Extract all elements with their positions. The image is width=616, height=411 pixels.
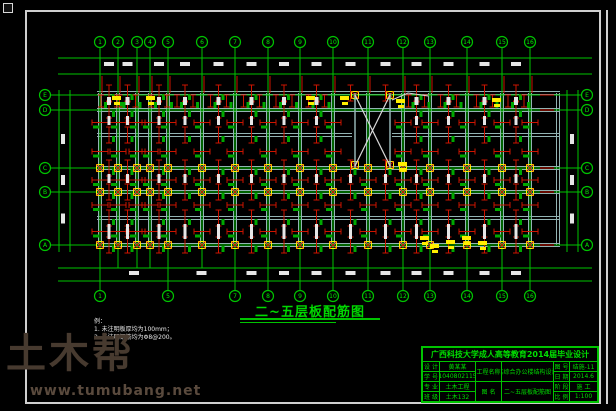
tb-label-date: 日 期 — [554, 372, 570, 382]
axis-bubble-label: 5 — [166, 293, 170, 300]
axis-bubble-label: 15 — [498, 39, 506, 46]
axis-bubble-label: 5 — [166, 39, 170, 46]
axis-bubble-label: D — [43, 107, 48, 114]
axis-bubble-label: 2 — [116, 39, 120, 46]
axis-bubble-label: C — [585, 165, 589, 172]
axis-bubble-label: 6 — [200, 39, 204, 46]
tb-value-stage: 施 工 — [570, 382, 597, 392]
axis-bubble-label: 11 — [364, 39, 372, 46]
tb-value-drawing: 二~五层板配筋图 — [502, 382, 554, 402]
axis-bubble-label: B — [43, 189, 47, 196]
axis-bubble-label: 15 — [498, 293, 506, 300]
axis-bubble-label: 10 — [329, 293, 337, 300]
axis-bubble-label: 14 — [463, 39, 471, 46]
tb-label-design: 设 计 — [423, 362, 440, 372]
tb-value-major: 土木工程 — [440, 382, 476, 392]
axis-bubble-label: 7 — [233, 293, 237, 300]
title-block: 广西科技大学成人高等教育2014届毕业设计 设 计 黄某某 工程名称 某综合办公… — [421, 346, 599, 403]
tb-label-stage: 阶 段 — [554, 382, 570, 392]
axis-bubble-label: 9 — [298, 39, 302, 46]
axis-bubble-label: 10 — [329, 39, 337, 46]
cad-screenshot: 1234567891011121314151615789101112131415… — [0, 0, 616, 411]
tb-value-sheetno: 结施-11 — [570, 362, 597, 372]
axis-bubble-label: 4 — [148, 39, 152, 46]
tb-label-class: 班 级 — [423, 392, 440, 402]
axis-bubble-label: 8 — [266, 39, 270, 46]
axis-bubble-label: 8 — [266, 293, 270, 300]
axis-bubble-label: 7 — [233, 39, 237, 46]
title-underline — [240, 318, 380, 320]
tb-value-scale: 1:100 — [570, 392, 597, 402]
axis-bubble-label: E — [43, 92, 47, 99]
watermark-url: www.tumubang.net — [30, 383, 201, 399]
tb-value-studentno: 1040802115 — [440, 372, 476, 382]
axis-bubble-label: 16 — [526, 39, 534, 46]
axis-bubble-label: 1 — [98, 39, 102, 46]
axis-bubble-label: E — [585, 92, 589, 99]
title-block-grid: 设 计 黄某某 工程名称 某综合办公楼结构设计 图 号 结施-11 学 号 10… — [423, 362, 597, 402]
notes-heading: 例： — [94, 318, 176, 326]
axis-bubble-label: 3 — [135, 39, 139, 46]
tb-value-date: 2014.6 — [570, 372, 597, 382]
tb-value-design: 黄某某 — [440, 362, 476, 372]
tb-label-studentno: 学 号 — [423, 372, 440, 382]
axis-bubble-label: 12 — [399, 293, 407, 300]
axis-bubble-label: B — [585, 189, 589, 196]
title-underline-2 — [240, 322, 336, 323]
axis-bubble-label: 13 — [426, 39, 434, 46]
tb-label-scale: 比 例 — [554, 392, 570, 402]
title-block-banner: 广西科技大学成人高等教育2014届毕业设计 — [423, 348, 597, 362]
axis-bubble-label: 11 — [364, 293, 372, 300]
tb-value-class: 土木132 — [440, 392, 476, 402]
axis-bubble-label: D — [585, 107, 590, 114]
tb-label-project: 工程名称 — [476, 362, 502, 382]
axis-bubble-label: 9 — [298, 293, 302, 300]
axis-bubble-label: 1 — [98, 293, 102, 300]
tb-label-major: 专 业 — [423, 382, 440, 392]
tb-label-drawing: 图 名 — [476, 382, 502, 402]
axis-bubble-label: C — [43, 165, 47, 172]
watermark-logo: 土木帮 — [6, 332, 135, 376]
axis-bubble-label: 14 — [463, 293, 471, 300]
axis-bubble-label: 12 — [399, 39, 407, 46]
axis-bubble-label: 16 — [526, 293, 534, 300]
axis-bubble-label: 13 — [426, 293, 434, 300]
tb-label-sheetno: 图 号 — [554, 362, 570, 372]
tb-value-project: 某综合办公楼结构设计 — [502, 362, 554, 382]
